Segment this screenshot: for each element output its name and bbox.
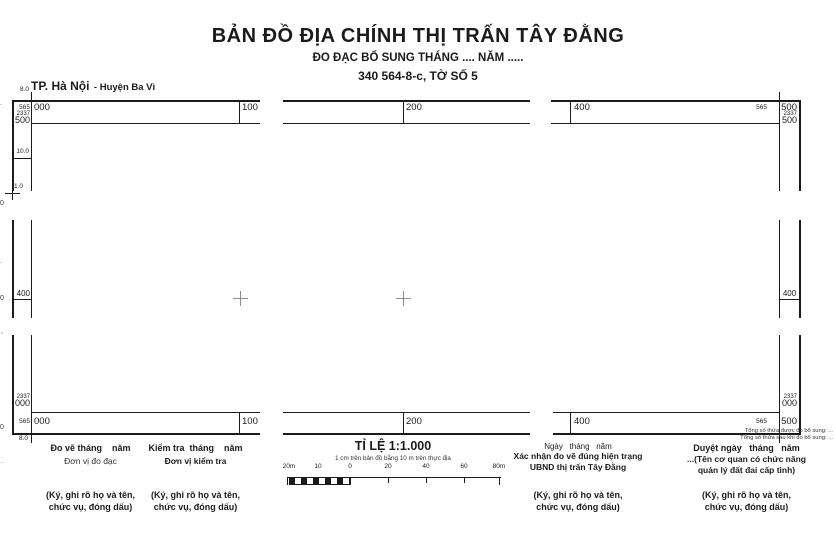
grid-label-top-400: 400 — [574, 103, 590, 113]
grid-tick-bot-100 — [239, 412, 240, 433]
grid-label-left-400: 400 — [13, 290, 30, 298]
grid-tick-top-200 — [403, 101, 404, 124]
frame-line-left-inner-bot — [31, 335, 32, 443]
inspect-sign-line-2: chức vụ, đóng dấu) — [123, 503, 268, 512]
coord-bl-easting: 000 — [34, 417, 50, 427]
frame-line-right-inner-bot — [779, 335, 780, 443]
confirm-statement-line: Xác nhận đo vẽ đúng hiện trạng — [498, 452, 658, 461]
edge-fragment: . — [1, 458, 3, 465]
scale-bar-label: 40 — [422, 464, 429, 471]
edge-fragment: . — [0, 100, 2, 107]
dim-label-bottom: 8.0 — [13, 436, 28, 443]
confirm-sign-line-1: (Ký, ghi rõ họ và tên, — [498, 491, 658, 500]
grid-tick-top-100 — [239, 101, 240, 124]
scale-title: TỈ LỆ 1:1.000 — [283, 440, 503, 453]
grid-tick-left-400 — [12, 299, 32, 300]
frame-line-top-inner-1 — [31, 123, 260, 124]
grid-label-top-100: 100 — [242, 103, 258, 113]
frame-line-top-inner-3 — [551, 123, 779, 124]
approve-date-line: Duyệt ngày tháng năm — [660, 444, 833, 453]
coord-tl-easting: 000 — [34, 103, 50, 113]
approve-agency-line-2: quản lý đất đai cấp tỉnh) — [660, 466, 833, 475]
scale-bar-tick — [388, 477, 389, 483]
page-subtitle: ĐO ĐẠC BỔ SUNG THÁNG .... NĂM ..... — [0, 53, 836, 65]
scale-bar-tick — [464, 477, 465, 483]
grid-label-bot-400: 400 — [574, 417, 590, 427]
scale-bar-checker — [289, 478, 350, 485]
dim-label-inner: 1.0 — [14, 184, 23, 191]
approve-parcel-note-2: Tổng số thửa sau khi đo bổ sung: ... — [660, 436, 833, 442]
approve-sign-line-1: (Ký, ghi rõ họ và tên, — [660, 491, 833, 500]
grid-label-top-200: 200 — [406, 103, 422, 113]
frame-line-bot-outer-1 — [12, 433, 260, 435]
frame-line-right-outer-bot — [799, 335, 801, 435]
frame-line-bot-outer-2 — [283, 433, 530, 435]
grid-label-bot-200: 200 — [406, 417, 422, 427]
inspect-date-line: Kiểm tra tháng năm — [123, 444, 268, 453]
scale-bar-tick — [426, 477, 427, 483]
frame-line-bot-inner-1 — [31, 412, 260, 413]
scale-bar-label: 0 — [348, 464, 352, 471]
frame-line-bot-inner-2 — [283, 412, 530, 413]
scale-bar-tick — [350, 477, 351, 485]
frame-line-bot-inner-3 — [553, 412, 779, 413]
grid-tick-bot-400 — [570, 412, 571, 433]
frame-line-left-inner-mid — [31, 220, 32, 318]
approve-parcel-note-1: Tổng số thửa được đo bổ sung: ... — [660, 429, 833, 435]
confirm-sign-line-2: chức vụ, đóng dấu) — [498, 503, 658, 512]
approve-agency-line-1: ...(Tên cơ quan có chức năng — [660, 455, 833, 464]
coord-tr-northing: 500 — [780, 116, 797, 125]
scale-bar-label: 60 — [460, 464, 467, 471]
scale-bar-label: 20 — [384, 464, 391, 471]
edge-fragment: 0 — [0, 200, 4, 207]
cadastral-map-sheet: BẢN ĐỒ ĐỊA CHÍNH THỊ TRẤN TÂY ĐẰNG ĐO ĐẠ… — [0, 0, 836, 544]
dim-cross-v — [12, 187, 13, 200]
frame-line-right-outer-top — [799, 100, 801, 191]
edge-fragment: 0 — [0, 295, 4, 302]
grid-label-right-400: 400 — [781, 290, 798, 298]
frame-line-right-outer-mid — [799, 220, 801, 318]
edge-fragment: 0 — [0, 424, 4, 431]
scale-bar-tick — [499, 477, 500, 485]
coord-bl-northing: 000 — [13, 399, 30, 408]
confirm-authority-line: UBND thị trấn Tây Đằng — [498, 463, 658, 472]
coord-br-easting-prefix: 565 — [751, 419, 767, 426]
district-label: - Huyện Ba Vì — [94, 82, 155, 93]
frame-line-left-outer-mid — [12, 220, 14, 318]
inspect-sign-line-1: (Ký, ghi rõ họ và tên, — [123, 491, 268, 500]
grid-label-bot-100: 100 — [242, 417, 258, 427]
province-label: TP. Hà Nội — [31, 79, 89, 93]
page-title: BẢN ĐỒ ĐỊA CHÍNH THỊ TRẤN TÂY ĐẰNG — [0, 26, 836, 46]
frame-line-right-inner-mid — [779, 220, 780, 318]
edge-fragment: , — [1, 328, 3, 335]
grid-tick-top-400 — [570, 101, 571, 124]
edge-fragment: . — [0, 258, 2, 265]
scale-bar-label: 10 — [314, 464, 321, 471]
scale-bar-tick — [287, 477, 288, 485]
coord-br-northing: 000 — [780, 399, 797, 408]
dim-tick-left — [12, 158, 32, 159]
scale-bar-tick — [318, 477, 319, 483]
inspect-unit-line: Đơn vị kiểm tra — [123, 457, 268, 466]
coord-br-easting: 500 — [780, 417, 797, 427]
confirm-date-line: Ngày tháng năm — [498, 443, 658, 451]
grid-tick-bot-200 — [403, 412, 404, 433]
scale-bar-label: 20m — [283, 464, 296, 471]
region-label: TP. Hà Nội - Huyện Ba Vì — [31, 78, 155, 94]
dim-label-left: 10.0 — [12, 149, 29, 156]
coord-tl-northing: 500 — [13, 116, 30, 125]
grid-cross-1-v — [240, 291, 241, 306]
coord-bl-easting-prefix: 565 — [14, 419, 30, 426]
approve-sign-line-2: chức vụ, đóng dấu) — [660, 503, 833, 512]
frame-line-top-inner-2 — [283, 123, 530, 124]
grid-tick-right-400 — [779, 299, 801, 300]
dim-label-top: 8.0 — [13, 87, 29, 94]
frame-line-left-inner-top — [31, 92, 32, 191]
grid-cross-2-v — [403, 291, 404, 306]
scale-note: 1 cm trên bản đồ bằng 10 m trên thực địa — [283, 456, 503, 462]
coord-tr-easting-prefix: 565 — [751, 105, 767, 112]
